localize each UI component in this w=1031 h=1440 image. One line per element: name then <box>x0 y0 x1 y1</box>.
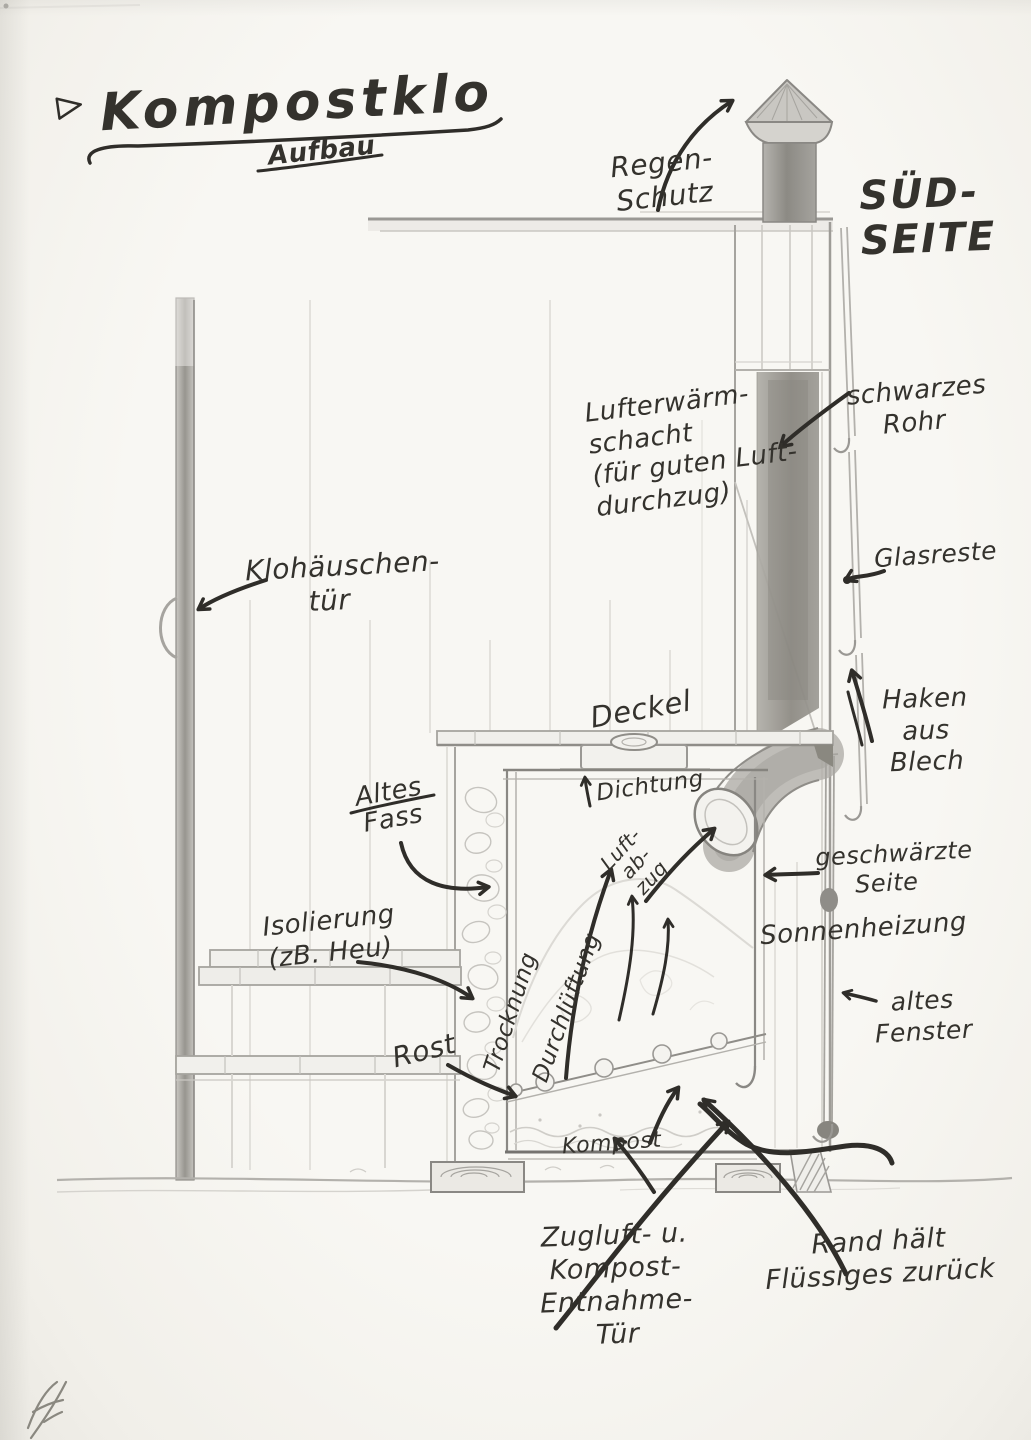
paper-artifacts <box>0 4 140 9</box>
signature-monogram <box>28 1382 66 1438</box>
label-geschwaerzte-seite: geschwärzte Seite <box>815 836 958 902</box>
airflow-arrow-mid <box>619 897 633 1020</box>
arrow-dichtung <box>585 778 590 806</box>
chimney-stack <box>763 143 816 222</box>
title-pointer-icon <box>57 96 83 119</box>
label-klohaeuschen-tuer: Klohäuschen- tür <box>244 546 412 623</box>
chimney <box>746 80 832 222</box>
door-handle <box>160 598 177 658</box>
label-sued-seite: SÜD- SEITE <box>858 170 997 264</box>
label-haken-aus-blech: Haken aus Blech <box>854 682 997 782</box>
label-rand-haelt: Rand hält Flüssiges zurück <box>750 1219 1008 1298</box>
label-altes-fenster: altes Fenster <box>856 983 989 1051</box>
hay-scribbles <box>459 783 501 1150</box>
label-isolierung: Isolierung (zB. Heu) <box>261 899 397 976</box>
airflow-arrow-right <box>653 920 668 1014</box>
liquid-flow-line <box>700 1104 892 1163</box>
label-zugluft-entnahme-tuer: Zugluft- u. Kompost-Entnahme- Tür <box>494 1216 738 1356</box>
rain-cap-bell <box>746 122 832 143</box>
label-lufterwaermschacht: Lufterwärm- schacht (für guten Luft- dur… <box>583 374 803 525</box>
arrow-geschwaerzte-seite <box>766 873 818 875</box>
label-regen-schutz: Regen- Schutz <box>609 141 718 220</box>
lid-handle <box>611 734 657 750</box>
arrow-altes-fass <box>401 843 488 889</box>
door-post <box>160 296 196 1180</box>
liquid-retaining-rim <box>736 1066 755 1087</box>
sketch-page: Kompostklo Aufbau Regen- Schutz SÜD- SEI… <box>0 0 1031 1440</box>
heap-scribbles <box>510 879 753 1147</box>
label-schwarzes-rohr: schwarzes Rohr <box>845 370 980 445</box>
elbow-duct <box>682 728 819 868</box>
floor-line <box>57 1166 1012 1193</box>
